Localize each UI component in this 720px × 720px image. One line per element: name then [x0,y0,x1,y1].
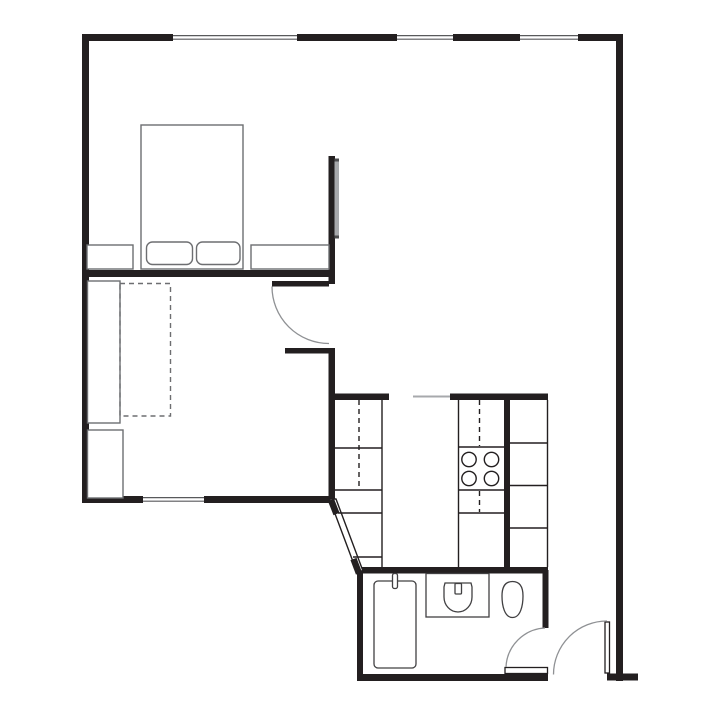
stove-burner-3 [462,471,476,485]
top-wall-segment-1 [82,34,173,41]
apartment-floor-plan [0,0,720,720]
bed-pillow-right [197,242,241,265]
bed-pillow-left [147,242,193,265]
bathroom-door-leaf [505,668,548,674]
top-wall-segment-2 [297,34,397,41]
entry-door-leaf [605,622,610,673]
storage-cabinet [88,430,124,498]
bathroom-south-wall [357,674,548,681]
living-room-door-leaf [272,281,329,287]
bedroom-sliding-panel [335,159,340,239]
kitchen-cap-right [450,394,548,401]
kitchen-cap-left [332,394,389,401]
bedroom-sliding-panel-bottom-cap [335,236,340,239]
entry-threshold-foot [607,674,638,681]
kitchen-west-wall [329,348,336,500]
bedroom-sliding-panel-top-cap [335,159,340,162]
kitchen-mid-wall [504,394,510,571]
living-south-wall-2 [204,496,332,503]
bathroom-west-wall [357,570,363,681]
sofa [88,281,121,423]
nightstand-right [251,245,329,269]
bathroom-north-wall [357,567,548,574]
stove-burner-2 [484,452,498,466]
bathroom-east-wall [543,570,549,628]
right-exterior-wall [616,34,623,681]
hall-stub-wall [285,348,335,354]
shower-faucet [393,574,398,589]
stove-burner-4 [484,471,498,485]
bedroom-south-wall [82,270,335,277]
floor-plan-drawing [0,0,720,720]
stove-burner-1 [462,452,476,466]
nightstand-left [87,245,133,269]
shower-tray [374,581,416,668]
sink-faucet [455,584,462,595]
top-wall-segment-3 [453,34,520,41]
toilet [502,582,523,618]
